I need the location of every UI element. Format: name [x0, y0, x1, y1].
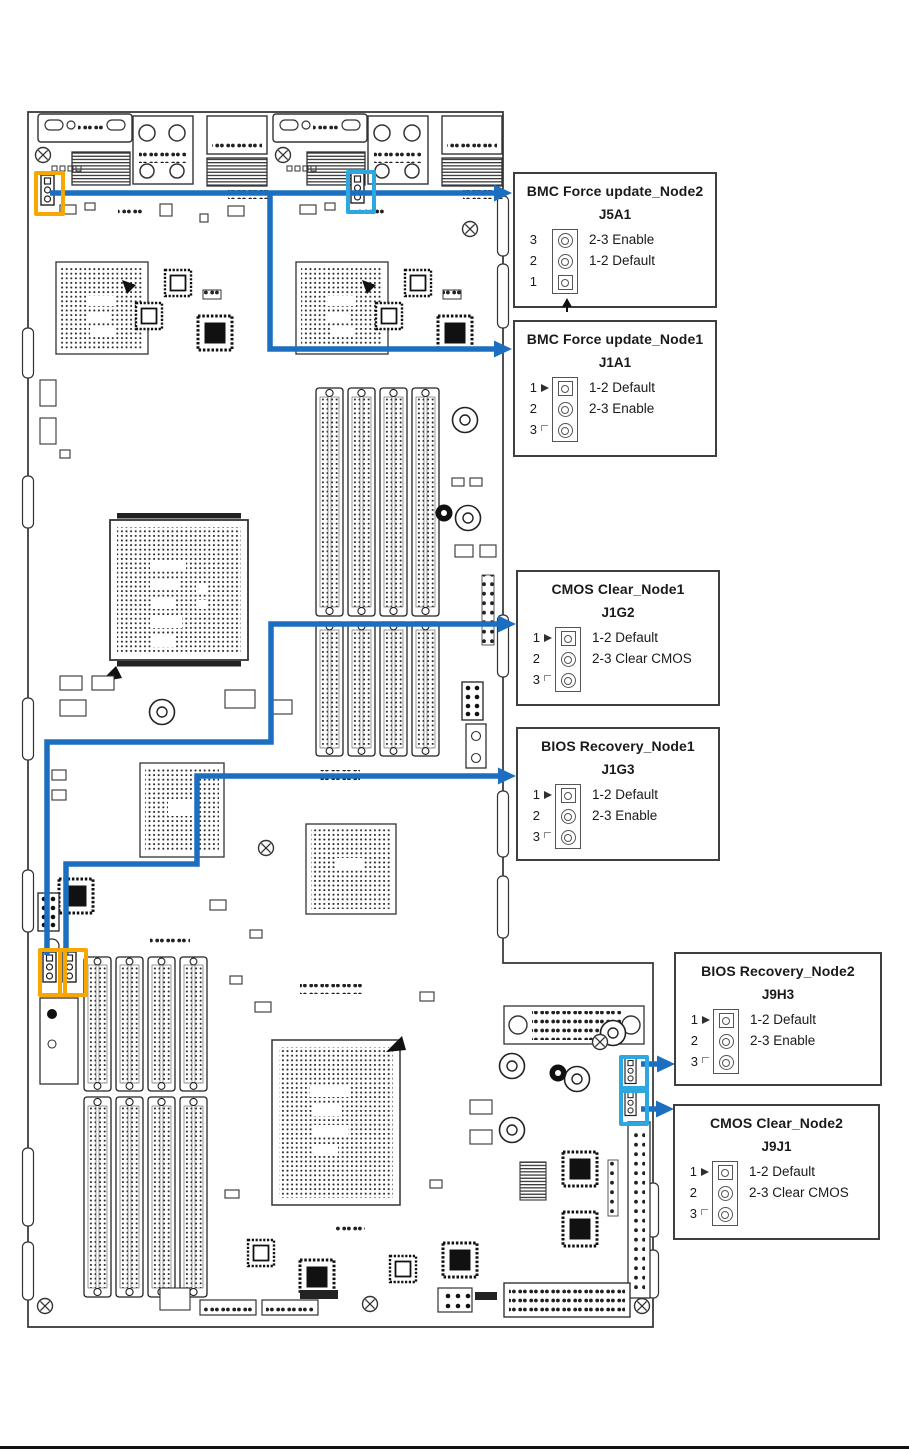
connector-line-j1a1: [270, 193, 495, 349]
pin1-icon: [719, 1013, 734, 1028]
jumper-pin-diagram: 1 2 3 1-2 Default 2-3 Enable: [527, 784, 718, 849]
pin-option-label: [750, 1051, 816, 1072]
pin-number: 3: [524, 422, 537, 437]
jumper-reference: J1A1: [515, 355, 715, 370]
callout-cmos-clear-node2: CMOS Clear_Node2 J9J1 1 2 3 1-2 Default …: [673, 1104, 880, 1240]
jumper-reference: J9H3: [676, 987, 880, 1002]
pin1-icon: [561, 631, 576, 646]
pin-number: 2: [685, 1033, 698, 1048]
pin-option-label: 1-2 Default: [750, 1009, 816, 1030]
highlight-jumper-j9j1: [619, 1086, 649, 1126]
callout-cmos-clear-node1: CMOS Clear_Node1 J1G2 1 2 3 1-2 Default …: [516, 570, 720, 706]
pin1-up-arrow-icon: [555, 298, 579, 312]
callout-bios-recovery-node2: BIOS Recovery_Node2 J9H3 1 2 3 1-2 Defau…: [674, 952, 882, 1086]
pin1-icon: [558, 275, 573, 290]
pin-number: 3: [527, 829, 540, 844]
pin-number: 3: [527, 672, 540, 687]
jumper-pin-diagram: 1 2 3 1-2 Default 2-3 Clear CMOS: [527, 627, 718, 692]
pin1-pointer-icon: [544, 791, 552, 799]
pin-option-label: 2-3 Enable: [592, 805, 658, 826]
pin1-icon: [561, 788, 576, 803]
pin3-icon: [561, 673, 576, 688]
highlight-jumper-j1g3: [58, 948, 88, 997]
pin3-cap-icon: [541, 425, 548, 431]
callout-bmc-force-update-node1: BMC Force update_Node1 J1A1 1 2 3 1-2 De…: [513, 320, 717, 457]
pin-option-label: [589, 271, 655, 292]
pin-header-outline: [555, 784, 581, 849]
pin2-icon: [558, 402, 573, 417]
callout-title: BIOS Recovery_Node1: [518, 738, 718, 754]
pin-header-outline: [555, 627, 581, 692]
pin1-pointer-icon: [701, 1168, 709, 1176]
pin-number: 1: [527, 787, 540, 802]
jumper-reference: J5A1: [515, 207, 715, 222]
pin-number: 3: [685, 1054, 698, 1069]
pin-header-outline: [552, 377, 578, 442]
arrowhead-j1a1: [494, 341, 512, 358]
pin2-icon: [561, 809, 576, 824]
pin3-icon: [558, 423, 573, 438]
pin-number: 1: [527, 630, 540, 645]
arrowhead-j1g3: [498, 768, 516, 785]
pin-option-label: 1-2 Default: [592, 627, 692, 648]
connector-line-j1g3: [66, 776, 499, 955]
pin-option-label: 2-3 Clear CMOS: [749, 1182, 849, 1203]
pin2-icon: [558, 254, 573, 269]
pin3-icon: [719, 1055, 734, 1070]
pin-option-label: 1-2 Default: [589, 377, 655, 398]
arrowhead-j9h3: [657, 1056, 675, 1073]
pin2-icon: [719, 1034, 734, 1049]
pin-number: 1: [524, 274, 537, 289]
pin-option-label: 1-2 Default: [592, 784, 658, 805]
pin1-icon: [558, 381, 573, 396]
pin3-icon: [718, 1207, 733, 1222]
pin3-cap-icon: [702, 1057, 709, 1063]
arrowhead-j5a1: [494, 185, 512, 202]
pin-number: 3: [684, 1206, 697, 1221]
pin-number: 2: [524, 253, 537, 268]
jumper-reference: J1G3: [518, 762, 718, 777]
arrowhead-j1g2: [498, 616, 516, 633]
pin-number: 3: [524, 232, 537, 247]
callout-title: BIOS Recovery_Node2: [676, 963, 880, 979]
pin-option-label: [592, 826, 658, 847]
pin-option-label: 2-3 Enable: [750, 1030, 816, 1051]
pin3-icon: [561, 830, 576, 845]
page-bottom-rule: [0, 1446, 909, 1449]
pin1-pointer-icon: [544, 634, 552, 642]
pin-option-label: 1-2 Default: [749, 1161, 849, 1182]
pin-number: 2: [527, 651, 540, 666]
callout-title: CMOS Clear_Node2: [675, 1115, 878, 1131]
highlight-jumper-j5a1: [346, 170, 376, 214]
pin-number: 1: [684, 1164, 697, 1179]
jumper-pin-diagram: 1 2 3 1-2 Default 2-3 Enable: [685, 1009, 880, 1074]
pin1-icon: [718, 1165, 733, 1180]
callout-title: BMC Force update_Node1: [515, 331, 715, 347]
jumper-reference: J1G2: [518, 605, 718, 620]
callout-title: CMOS Clear_Node1: [518, 581, 718, 597]
pin-option-label: 2-3 Enable: [589, 229, 655, 250]
callout-title: BMC Force update_Node2: [515, 183, 715, 199]
pin3-cap-icon: [544, 832, 551, 838]
pin-option-label: 2-3 Enable: [589, 398, 655, 419]
pin-option-label: 1-2 Default: [589, 250, 655, 271]
pin3-cap-icon: [544, 675, 551, 681]
arrowhead-j9j1: [656, 1101, 674, 1118]
callout-bios-recovery-node1: BIOS Recovery_Node1 J1G3 1 2 3 1-2 Defau…: [516, 727, 720, 861]
pin-number: 1: [685, 1012, 698, 1027]
pin3-cap-icon: [701, 1209, 708, 1215]
highlight-jumper-j1a1: [34, 171, 65, 216]
connector-line-j1g2: [47, 624, 499, 955]
pin1-pointer-icon: [541, 384, 549, 392]
pin-option-label: [749, 1203, 849, 1224]
pin-option-label: [589, 419, 655, 440]
pin2-icon: [718, 1186, 733, 1201]
pin-number: 1: [524, 380, 537, 395]
jumper-pin-diagram: 1 2 3 1-2 Default 2-3 Enable: [524, 377, 715, 442]
jumper-location-diagram-page: { "colors": { "accent_blue": "#1c6fc0", …: [0, 0, 909, 1453]
pin-number: 2: [684, 1185, 697, 1200]
pin-number: 2: [527, 808, 540, 823]
jumper-pin-diagram: 3 2 1 2-3 Enable 1-2 Default: [524, 229, 715, 294]
pin-header-outline: [713, 1009, 739, 1074]
pin-header-outline: [552, 229, 578, 294]
jumper-pin-diagram: 1 2 3 1-2 Default 2-3 Clear CMOS: [684, 1161, 878, 1226]
pin-header-outline: [712, 1161, 738, 1226]
callout-bmc-force-update-node2: BMC Force update_Node2 J5A1 3 2 1 2-3 En…: [513, 172, 717, 308]
pin-number: 2: [524, 401, 537, 416]
pin3-icon: [558, 233, 573, 248]
pin-option-label: [592, 669, 692, 690]
pin2-icon: [561, 652, 576, 667]
pin-option-label: 2-3 Clear CMOS: [592, 648, 692, 669]
jumper-reference: J9J1: [675, 1139, 878, 1154]
pin1-pointer-icon: [702, 1016, 710, 1024]
